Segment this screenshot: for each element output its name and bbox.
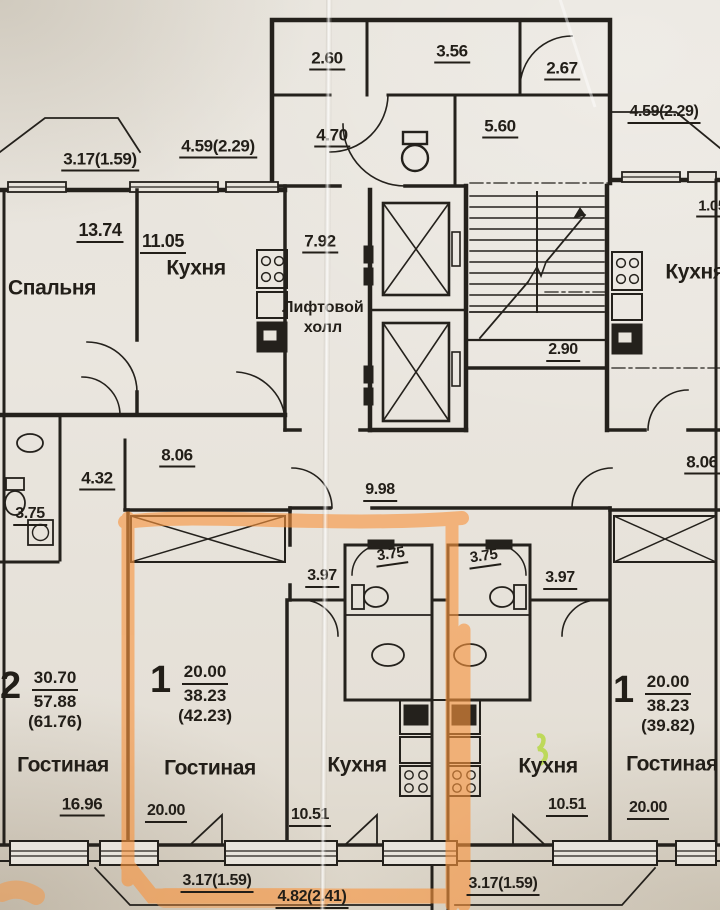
dim-label: 2.90	[546, 342, 580, 362]
dim-label: 3.97	[305, 568, 339, 588]
dim-label: 10.51	[289, 807, 331, 827]
room-label-living: Гостиная	[17, 755, 109, 776]
unit-2-total-area: 57.88	[34, 692, 77, 712]
door-arc	[343, 124, 405, 186]
floor-plan-photo: 3.17(1.59) 4.59(2.29) 2.60 3.56 2.67 4.7…	[0, 0, 720, 910]
door-arc	[292, 468, 332, 508]
unit-1-right-total-area: 38.23	[647, 696, 690, 716]
door-arc	[82, 377, 120, 415]
dim-label: 4.59(2.29)	[179, 138, 257, 159]
door-arc	[572, 468, 612, 508]
unit-1-right-number: 1	[613, 672, 634, 708]
door-arc	[302, 600, 338, 636]
window	[688, 172, 716, 182]
toilet-icon	[352, 585, 364, 609]
room-label-bedroom: Спальня	[8, 278, 96, 299]
dim-label: 2.60	[309, 50, 345, 71]
bathroom	[345, 545, 432, 700]
unit-2-areas: 2 30.70 57.88 (61.76)	[0, 668, 82, 732]
room-label-kitchen: Кухня	[518, 756, 577, 777]
room-label-kitchen: Кухня	[327, 755, 386, 776]
door-arc	[562, 600, 598, 636]
unit-1-right-extra-area: (39.82)	[641, 716, 695, 736]
dim-label: 9.98	[363, 482, 397, 502]
dim-label: 8.06	[684, 454, 720, 475]
dim-label: 11.05	[140, 232, 186, 254]
sink-icon	[372, 644, 404, 666]
unit-2-extra-area: (61.76)	[28, 712, 82, 732]
balcony-door	[190, 815, 222, 845]
unit-1-right-areas: 1 20.00 38.23 (39.82)	[613, 672, 695, 736]
dim-label: 3.56	[434, 43, 470, 64]
dim-label: 7.92	[302, 233, 338, 254]
dim-label: 4.32	[79, 470, 115, 491]
sink-icon	[17, 434, 43, 452]
lift-hall-line2: холл	[282, 318, 363, 338]
stair-arrow	[480, 215, 585, 338]
dim-label: 1.05	[696, 199, 720, 218]
balcony-door	[345, 815, 377, 845]
toilet-icon	[6, 478, 24, 490]
unit-1-left-areas: 1 20.00 38.23 (42.23)	[150, 662, 232, 726]
door-arc	[648, 390, 688, 430]
dim-label: 20.00	[627, 800, 669, 820]
dim-label: 20.00	[145, 803, 187, 823]
dim-label: 4.82(2.41)	[276, 889, 349, 909]
dim-label: 3.97	[543, 570, 577, 590]
dim-label: 3.75	[13, 506, 47, 526]
unit-1-left-extra-area: (42.23)	[178, 706, 232, 726]
dim-label: 3.17(1.59)	[181, 873, 254, 893]
unit-1-right-living-area: 20.00	[645, 672, 692, 695]
dim-label: 4.59(2.29)	[628, 104, 701, 124]
unit-2-number: 2	[0, 668, 21, 704]
door-arc	[237, 372, 285, 418]
garbage-chute-icon	[402, 145, 428, 171]
room-label-living: Гостиная	[164, 758, 256, 779]
dim-label: 10.51	[546, 797, 588, 817]
room-label-kitchen: Кухня	[166, 258, 225, 279]
room-label-lift-hall: Лифтовой холл	[282, 298, 363, 338]
dim-label: 3.17(1.59)	[61, 151, 139, 172]
room-label-kitchen: Кухня	[665, 262, 720, 283]
unit-1-left-number: 1	[150, 662, 171, 698]
toilet-icon	[514, 585, 526, 609]
balcony-door	[513, 815, 545, 845]
dim-label: 13.74	[76, 221, 123, 243]
dim-label: 5.60	[482, 118, 518, 139]
dim-label: 16.96	[60, 796, 105, 817]
dim-label: 4.70	[314, 127, 350, 148]
door-arc	[87, 342, 137, 392]
dim-label: 2.67	[544, 60, 580, 81]
unit-1-left-living-area: 20.00	[182, 662, 229, 685]
unit-2-living-area: 30.70	[32, 668, 79, 691]
unit-1-left-total-area: 38.23	[184, 686, 227, 706]
dim-label: 3.17(1.59)	[467, 876, 540, 896]
dim-label: 8.06	[159, 447, 195, 468]
room-label-living: Гостиная	[626, 754, 718, 775]
lift-hall-line1: Лифтовой	[282, 298, 363, 318]
